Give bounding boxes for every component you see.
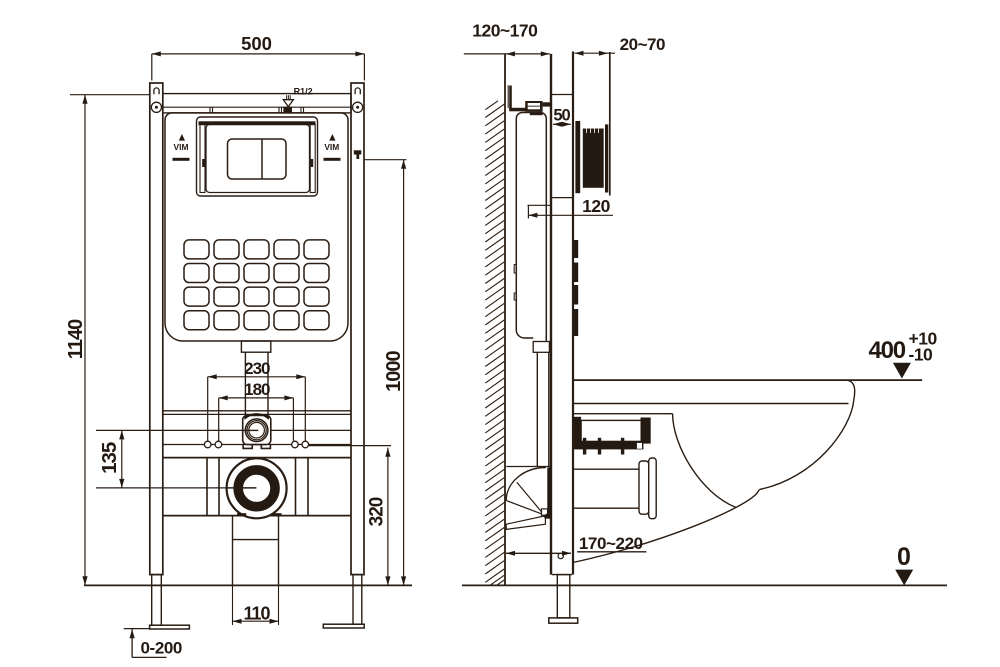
svg-text:R1/2: R1/2 bbox=[294, 86, 313, 96]
svg-text:VIM: VIM bbox=[324, 142, 339, 152]
svg-text:400: 400 bbox=[869, 337, 906, 364]
svg-text:0-200: 0-200 bbox=[141, 638, 182, 657]
svg-text:500: 500 bbox=[241, 33, 272, 54]
svg-text:110: 110 bbox=[243, 604, 270, 624]
svg-text:0: 0 bbox=[897, 543, 911, 571]
svg-text:320: 320 bbox=[367, 497, 388, 526]
svg-text:20~70: 20~70 bbox=[620, 35, 665, 54]
svg-text:135: 135 bbox=[98, 442, 121, 474]
svg-text:50: 50 bbox=[553, 107, 570, 125]
svg-text:VIM: VIM bbox=[174, 142, 189, 152]
svg-text:180: 180 bbox=[244, 380, 270, 399]
svg-text:120~170: 120~170 bbox=[472, 21, 538, 41]
svg-text:230: 230 bbox=[244, 359, 270, 378]
svg-text:170~220: 170~220 bbox=[579, 534, 643, 553]
svg-text:1140: 1140 bbox=[65, 319, 87, 359]
svg-text:120: 120 bbox=[582, 196, 610, 216]
svg-text:1000: 1000 bbox=[383, 350, 405, 391]
svg-text:-10: -10 bbox=[909, 345, 934, 365]
